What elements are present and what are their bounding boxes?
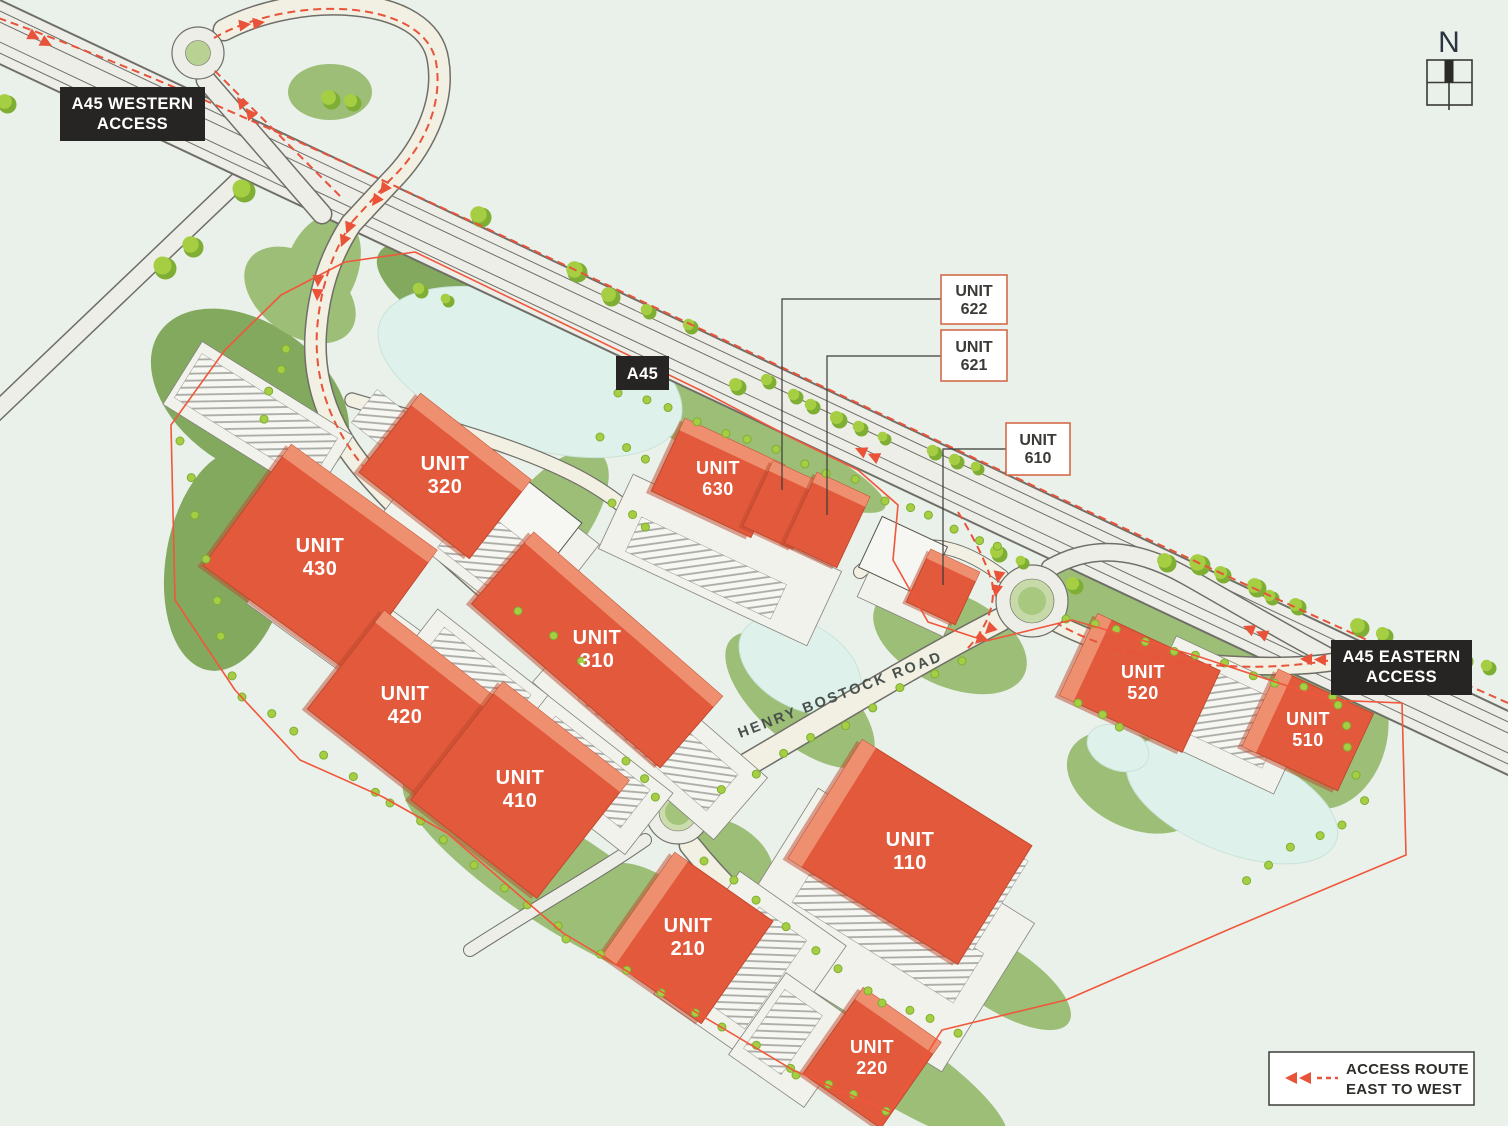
shrub-icon	[878, 999, 886, 1007]
shrub-icon	[954, 1029, 962, 1037]
shrub-icon	[1099, 711, 1107, 719]
callout-unit-610-line1: UNIT	[1019, 432, 1057, 449]
shrub-icon	[869, 704, 877, 712]
shrub-icon	[752, 896, 760, 904]
shrub-icon	[1115, 723, 1123, 731]
label-a45-western-access: A45 WESTERN ACCESS	[60, 87, 205, 141]
label-a45-text: A45	[627, 365, 658, 383]
shrub-icon	[851, 475, 859, 483]
unit-220-label-line1: UNIT	[850, 1037, 894, 1057]
unit-520-label-line2: 520	[1127, 683, 1159, 703]
shrub-icon	[470, 861, 478, 869]
shrub-icon	[834, 965, 842, 973]
callout-unit-610-line2: 610	[1025, 450, 1052, 467]
unit-420-label-line1: UNIT	[381, 683, 430, 705]
shrub-icon	[228, 672, 236, 680]
site-masterplan: UNIT 622 UNIT 621 UNIT 610 UNIT 430 UNIT…	[0, 0, 1508, 1126]
shrub-icon	[1343, 722, 1351, 730]
label-a45-western-line2: ACCESS	[97, 115, 168, 133]
shrub-icon	[349, 773, 357, 781]
label-a45-eastern-access: A45 EASTERN ACCESS	[1331, 640, 1472, 695]
unit-630-label-line1: UNIT	[696, 458, 740, 478]
shrub-icon	[976, 537, 984, 545]
unit-320-label-line1: UNIT	[421, 453, 470, 475]
shrub-icon	[622, 757, 630, 765]
shrub-icon	[958, 657, 966, 665]
shrub-icon	[931, 670, 939, 678]
label-a45-eastern-line1: A45 EASTERN	[1342, 648, 1460, 666]
shrub-icon	[217, 632, 225, 640]
shrub-icon	[822, 469, 830, 477]
callout-unit-621-line2: 621	[961, 357, 988, 374]
shrub-icon	[801, 460, 809, 468]
shrub-icon	[807, 733, 815, 741]
shrub-icon	[268, 710, 276, 718]
shrub-icon	[881, 497, 889, 505]
unit-510-label-line2: 510	[1292, 730, 1324, 750]
shrub-icon	[842, 722, 850, 730]
unit-220-label-line2: 220	[856, 1058, 888, 1078]
callout-unit-610[interactable]: UNIT 610	[1006, 423, 1070, 475]
shrub-icon	[864, 987, 872, 995]
unit-430-label-line1: UNIT	[296, 535, 345, 557]
shrub-icon	[191, 511, 199, 519]
callout-unit-621-line1: UNIT	[955, 339, 993, 356]
north-letter: N	[1438, 26, 1460, 59]
unit-210-label-line1: UNIT	[664, 915, 713, 937]
unit-510-label-line1: UNIT	[1286, 709, 1330, 729]
shrub-icon	[1265, 861, 1273, 869]
shrub-icon	[290, 727, 298, 735]
shrub-icon	[651, 793, 659, 801]
shrub-icon	[926, 1014, 934, 1022]
unit-310-label-line2: 310	[580, 650, 615, 672]
shrub-icon	[320, 751, 328, 759]
shrub-icon	[550, 632, 558, 640]
shrub-icon	[643, 396, 651, 404]
shrub-icon	[717, 786, 725, 794]
shrub-icon	[614, 389, 622, 397]
shrub-icon	[780, 749, 788, 757]
label-a45-western-line1: A45 WESTERN	[72, 95, 194, 113]
unit-110-label-line2: 110	[893, 852, 927, 874]
shrub-icon	[1361, 797, 1369, 805]
shrub-icon	[1343, 743, 1351, 751]
shrub-icon	[202, 555, 210, 563]
legend-line2: EAST TO WEST	[1346, 1081, 1462, 1098]
masterplan-canvas: UNIT 622 UNIT 621 UNIT 610 UNIT 430 UNIT…	[0, 0, 1508, 1126]
callout-unit-622[interactable]: UNIT 622	[941, 275, 1007, 324]
shrub-icon	[641, 523, 649, 531]
shrub-icon	[623, 444, 631, 452]
shrub-icon	[1338, 821, 1346, 829]
callout-unit-621[interactable]: UNIT 621	[941, 330, 1007, 381]
unit-630-label-line2: 630	[702, 479, 734, 499]
shrub-icon	[1352, 771, 1360, 779]
shrub-icon	[1243, 877, 1251, 885]
label-a45: A45	[616, 356, 669, 390]
roundabout-east	[996, 565, 1068, 637]
shrub-icon	[1074, 699, 1082, 707]
shrub-icon	[213, 597, 221, 605]
shrub-icon	[608, 499, 616, 507]
shrub-icon	[772, 445, 780, 453]
shrub-icon	[260, 415, 268, 423]
shrub-icon	[722, 429, 730, 437]
unit-410-label-line2: 410	[503, 790, 538, 812]
shrub-icon	[176, 437, 184, 445]
shrub-icon	[924, 511, 932, 519]
callout-unit-622-line1: UNIT	[955, 283, 993, 300]
shrub-icon	[282, 345, 290, 353]
unit-320-label-line2: 320	[428, 476, 463, 498]
shrub-icon	[950, 525, 958, 533]
shrub-icon	[514, 607, 522, 615]
unit-110-label-line1: UNIT	[886, 829, 935, 851]
shrub-icon	[439, 836, 447, 844]
legend-line1: ACCESS ROUTE	[1346, 1061, 1469, 1078]
shrub-icon	[629, 511, 637, 519]
shrub-icon	[993, 542, 1001, 550]
unit-310-label-line1: UNIT	[573, 627, 622, 649]
shrub-icon	[906, 1006, 914, 1014]
shrub-icon	[1334, 701, 1342, 709]
shrub-icon	[1286, 843, 1294, 851]
unit-210-label-line2: 210	[671, 938, 706, 960]
shrub-icon	[277, 366, 285, 374]
shrub-icon	[664, 404, 672, 412]
shrub-icon	[641, 455, 649, 463]
shrub-icon	[693, 418, 701, 426]
shrub-icon	[752, 770, 760, 778]
shrub-icon	[730, 876, 738, 884]
unit-410-label-line1: UNIT	[496, 767, 545, 789]
callout-unit-622-line2: 622	[961, 301, 988, 318]
shrub-icon	[187, 474, 195, 482]
shrub-icon	[896, 684, 904, 692]
shrub-icon	[641, 775, 649, 783]
shrub-icon	[782, 923, 790, 931]
shrub-icon	[1316, 832, 1324, 840]
unit-520-label-line1: UNIT	[1121, 662, 1165, 682]
shrub-icon	[743, 435, 751, 443]
unit-430-label-line2: 430	[303, 558, 338, 580]
label-a45-eastern-line2: ACCESS	[1366, 668, 1437, 686]
shrub-icon	[265, 387, 273, 395]
shrub-icon	[907, 504, 915, 512]
legend: ACCESS ROUTE EAST TO WEST	[1269, 1052, 1474, 1105]
shrub-icon	[812, 947, 820, 955]
unit-420-label-line2: 420	[388, 706, 423, 728]
shrub-icon	[700, 857, 708, 865]
shrub-icon	[596, 433, 604, 441]
